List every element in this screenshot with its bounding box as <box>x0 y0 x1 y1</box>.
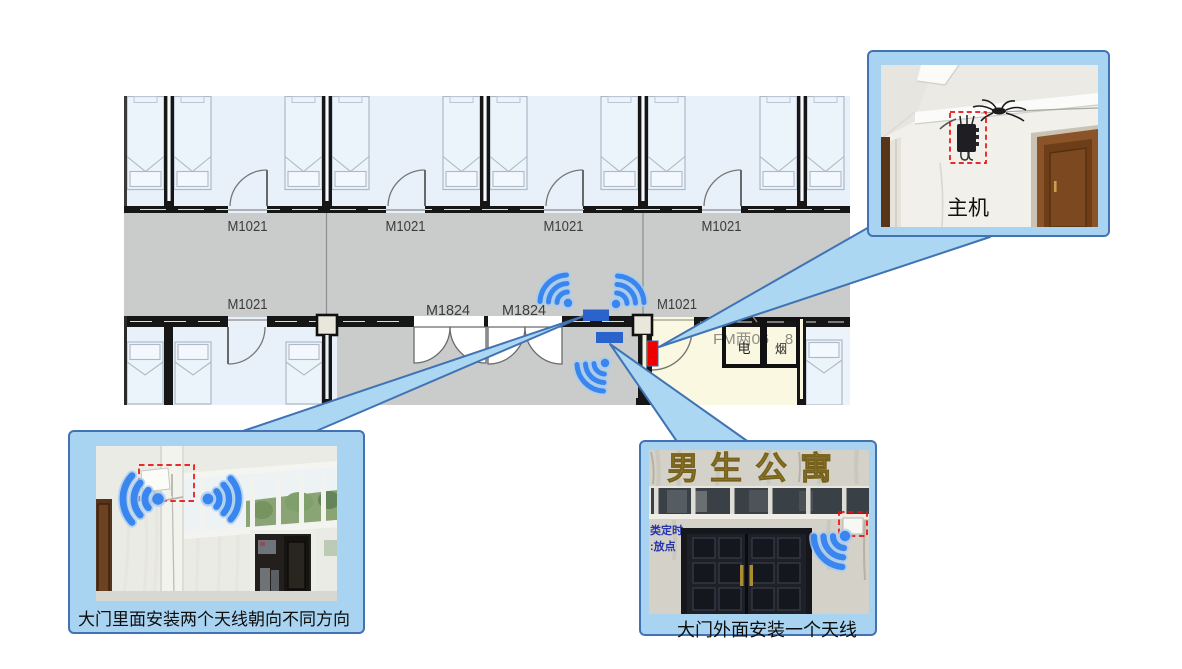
svg-text:主机: 主机 <box>947 197 989 220</box>
svg-text:M1021: M1021 <box>228 297 268 313</box>
svg-text:类定时: 类定时 <box>650 523 683 537</box>
svg-text:公: 公 <box>755 450 787 486</box>
svg-text::放点: :放点 <box>650 539 676 553</box>
svg-text:男: 男 <box>667 450 699 486</box>
svg-text:生: 生 <box>710 450 742 486</box>
svg-text:M1021: M1021 <box>386 219 426 235</box>
svg-text:M1021: M1021 <box>702 219 742 235</box>
svg-text:寓: 寓 <box>800 450 832 486</box>
svg-text:烟: 烟 <box>775 342 787 356</box>
svg-text:M1021: M1021 <box>544 219 584 235</box>
svg-text:电: 电 <box>737 341 750 356</box>
svg-text:M1021: M1021 <box>228 219 268 235</box>
svg-text:M1824: M1824 <box>426 303 470 319</box>
svg-text:M1021: M1021 <box>657 297 697 313</box>
